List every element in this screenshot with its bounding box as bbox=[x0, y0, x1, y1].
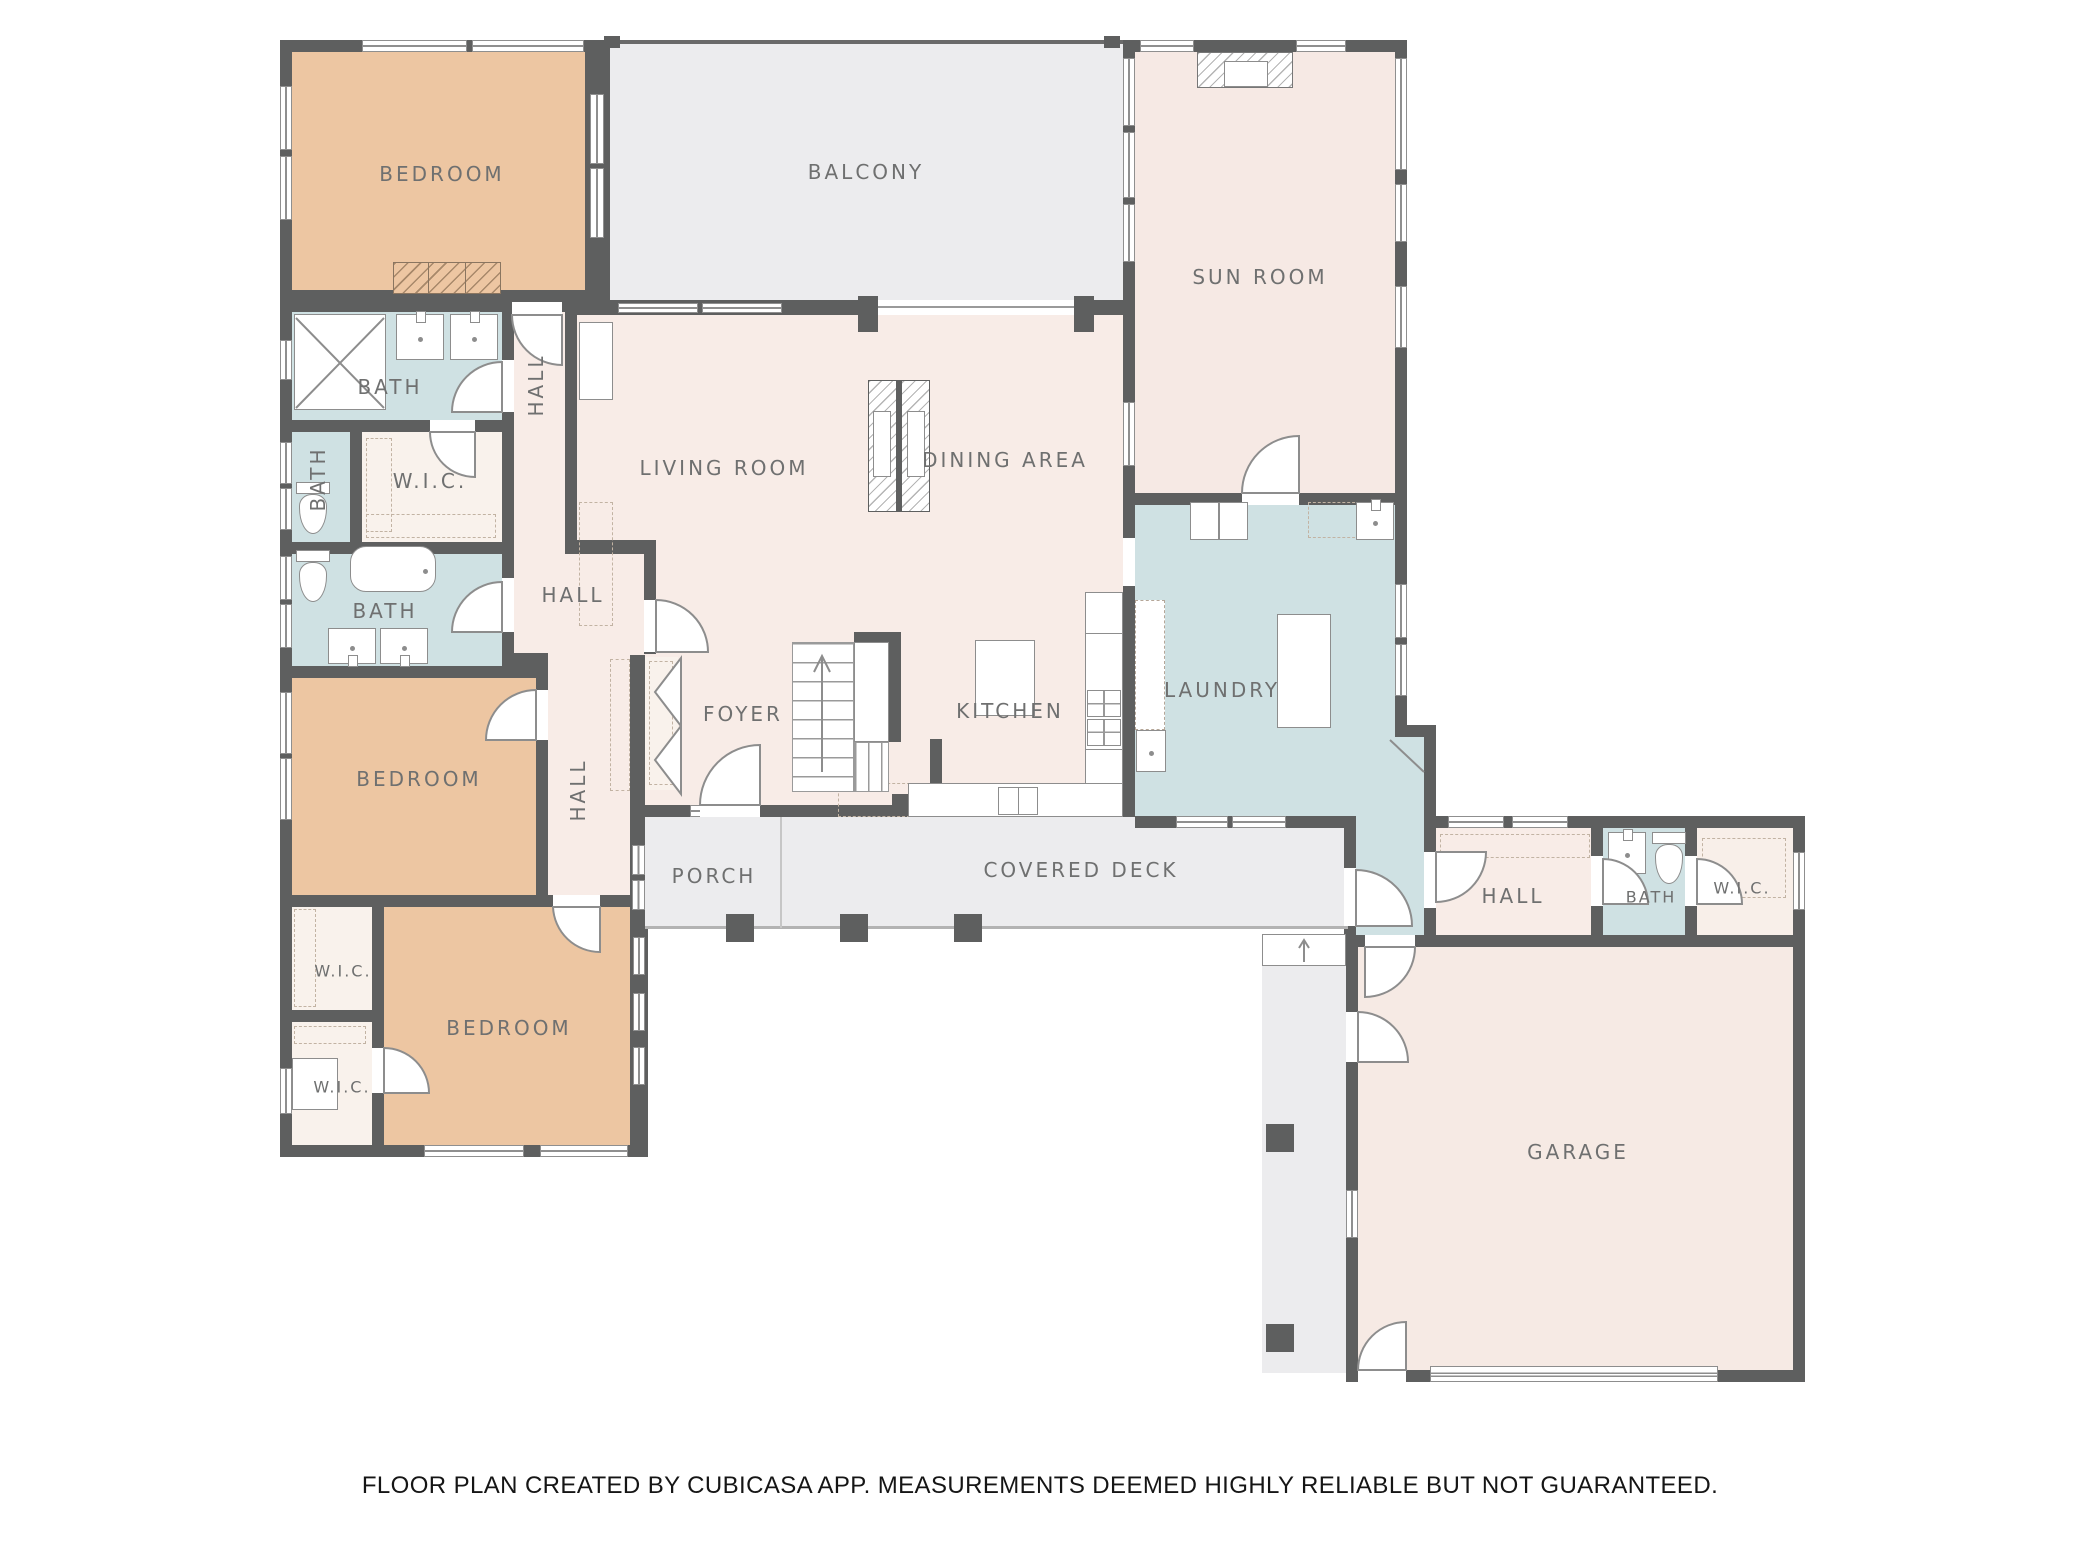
door-opening bbox=[553, 895, 600, 907]
sink bbox=[328, 628, 376, 664]
room-label-kitchen: KITCHEN bbox=[956, 699, 1064, 723]
room-label-hall-mid: HALL bbox=[541, 583, 604, 607]
door-opening bbox=[536, 690, 548, 740]
balcony-post bbox=[604, 36, 620, 48]
tap-icon bbox=[400, 655, 410, 667]
window bbox=[1395, 58, 1407, 170]
room-label-wic-garage: W.I.C. bbox=[1713, 879, 1770, 898]
window bbox=[424, 1145, 524, 1157]
room-label-wic-lower-1: W.I.C. bbox=[314, 962, 371, 981]
deck-post bbox=[726, 914, 754, 942]
laundry-counter-dashed bbox=[1308, 502, 1360, 538]
window bbox=[1512, 816, 1568, 828]
door-opening bbox=[1424, 852, 1436, 908]
window bbox=[1296, 40, 1346, 52]
bathtub bbox=[350, 546, 436, 592]
sink bbox=[396, 314, 444, 360]
room-label-bath-left: BATH bbox=[306, 446, 330, 511]
fireplace-insert bbox=[1224, 61, 1268, 87]
door-opening bbox=[502, 360, 514, 412]
toilet-tank bbox=[296, 550, 330, 562]
window bbox=[1793, 852, 1805, 910]
tap-icon bbox=[1623, 829, 1633, 841]
room-laundry bbox=[1135, 505, 1395, 816]
room-hall-upper bbox=[514, 312, 565, 554]
room-label-balcony: BALCONY bbox=[808, 160, 924, 184]
closet-box bbox=[579, 322, 613, 400]
sunroom-fireplace bbox=[1197, 52, 1293, 88]
window bbox=[1395, 584, 1407, 638]
closet-dashed bbox=[366, 514, 496, 538]
garage-walkway bbox=[1262, 935, 1346, 1373]
window bbox=[590, 94, 604, 164]
room-label-bath-top: BATH bbox=[357, 375, 422, 399]
window bbox=[1123, 132, 1135, 198]
counter-divider bbox=[1086, 633, 1122, 634]
drain-icon bbox=[1373, 521, 1378, 526]
door-opening bbox=[1365, 935, 1415, 947]
hatch-divider bbox=[428, 263, 466, 293]
door-opening bbox=[1344, 868, 1356, 926]
window bbox=[632, 845, 645, 875]
room-label-laundry: LAUNDRY bbox=[1164, 678, 1280, 702]
sink bbox=[1608, 832, 1646, 874]
drain-icon bbox=[402, 646, 407, 651]
toilet bbox=[1652, 832, 1686, 886]
tap-icon bbox=[348, 655, 358, 667]
window bbox=[632, 880, 645, 910]
room-label-garage: GARAGE bbox=[1527, 1140, 1629, 1164]
window bbox=[1395, 286, 1407, 348]
window bbox=[1176, 816, 1228, 828]
door-opening bbox=[1358, 1368, 1406, 1382]
fireplace-insert bbox=[873, 411, 891, 477]
laundry-island bbox=[1277, 614, 1331, 728]
room-label-hall-upper: HALL bbox=[524, 353, 548, 416]
room-label-living-room: LIVING ROOM bbox=[639, 456, 808, 480]
window bbox=[1232, 816, 1286, 828]
window bbox=[1123, 58, 1135, 126]
cased-opening bbox=[1123, 538, 1135, 586]
porch-deck-divider bbox=[780, 817, 782, 928]
floor-plan: BEDROOM BALCONY SUN ROOM BATH HALL W.I.C… bbox=[0, 0, 2080, 1560]
window bbox=[280, 604, 292, 648]
window bbox=[1123, 402, 1135, 466]
room-label-hall-garage: HALL bbox=[1481, 884, 1544, 908]
window bbox=[280, 488, 292, 530]
staircase bbox=[792, 642, 854, 792]
closet-dashed bbox=[649, 661, 673, 785]
laundry-sink bbox=[1356, 502, 1394, 540]
window bbox=[362, 40, 467, 52]
opening-post bbox=[1074, 296, 1094, 332]
toilet bbox=[296, 550, 330, 604]
cooktop bbox=[1087, 690, 1121, 717]
window bbox=[618, 303, 698, 313]
deck-stair-box bbox=[1262, 934, 1346, 966]
window bbox=[590, 168, 604, 238]
sink bbox=[450, 314, 498, 360]
bedroom-closet-hatch bbox=[393, 262, 501, 294]
walkway-post bbox=[1266, 1124, 1294, 1152]
room-label-dining-area: DINING AREA bbox=[922, 448, 1088, 472]
sink bbox=[380, 628, 428, 664]
fireplace-core bbox=[896, 381, 902, 511]
window bbox=[1123, 204, 1135, 262]
room-label-bedroom-mid: BEDROOM bbox=[356, 767, 481, 791]
window bbox=[280, 340, 292, 380]
laundry-appliance bbox=[1136, 730, 1166, 772]
stair-landing bbox=[854, 642, 889, 742]
laundry-counter bbox=[1135, 600, 1165, 730]
stair-winder bbox=[854, 742, 889, 792]
window bbox=[280, 442, 292, 484]
room-label-hall-lower: HALL bbox=[566, 758, 590, 821]
deck-post bbox=[840, 914, 868, 942]
counter-divider bbox=[1086, 749, 1122, 750]
room-laundry-ext bbox=[1395, 737, 1424, 828]
closet-dashed bbox=[294, 1026, 366, 1044]
tap-icon bbox=[470, 311, 480, 323]
toilet-bowl bbox=[1655, 844, 1683, 884]
door-opening bbox=[512, 302, 562, 315]
toilet-tank bbox=[1652, 832, 1686, 844]
opening-post bbox=[858, 296, 878, 332]
room-label-foyer: FOYER bbox=[703, 702, 783, 726]
window bbox=[633, 993, 645, 1031]
tap-icon bbox=[423, 569, 428, 574]
room-label-porch: PORCH bbox=[672, 864, 757, 888]
tap-icon bbox=[1371, 499, 1381, 511]
window bbox=[702, 303, 782, 313]
room-laundry-hall bbox=[1356, 816, 1424, 935]
cooktop bbox=[1087, 719, 1121, 746]
room-label-bedroom-top: BEDROOM bbox=[379, 162, 504, 186]
garage-door bbox=[1430, 1366, 1718, 1382]
door-opening bbox=[700, 805, 760, 817]
door-opening bbox=[644, 600, 656, 652]
sink-divider bbox=[1018, 788, 1019, 814]
window bbox=[280, 156, 292, 220]
door-opening bbox=[502, 578, 514, 632]
kitchen-sink bbox=[998, 787, 1038, 815]
window bbox=[280, 758, 292, 820]
sliding-door-line bbox=[878, 306, 1074, 308]
walkway-post bbox=[1266, 1324, 1294, 1352]
laundry-machine bbox=[1190, 502, 1219, 540]
door-opening bbox=[430, 420, 475, 432]
room-label-bath-mid: BATH bbox=[352, 599, 417, 623]
living-fireplace bbox=[868, 380, 930, 512]
window bbox=[1395, 184, 1407, 242]
door-opening bbox=[1591, 856, 1603, 906]
window bbox=[280, 692, 292, 754]
window bbox=[1346, 1190, 1358, 1238]
closet-dashed bbox=[1440, 834, 1590, 858]
drain-icon bbox=[350, 646, 355, 651]
drain-icon bbox=[418, 337, 423, 342]
closet-dashed bbox=[610, 659, 630, 791]
room-label-sun-room: SUN ROOM bbox=[1192, 265, 1327, 289]
window bbox=[280, 1068, 292, 1114]
room-label-bedroom-bottom: BEDROOM bbox=[446, 1016, 571, 1040]
closet-dashed bbox=[294, 909, 316, 1007]
balcony-post bbox=[1104, 36, 1120, 48]
door-opening bbox=[372, 1048, 384, 1093]
knob-icon bbox=[1149, 751, 1154, 756]
drain-icon bbox=[1625, 853, 1630, 858]
room-label-wic-lower-2: W.I.C. bbox=[313, 1078, 370, 1097]
deck-post bbox=[954, 914, 982, 942]
door-opening bbox=[1242, 493, 1299, 505]
window bbox=[1448, 816, 1504, 828]
room-label-bath-garage: BATH bbox=[1626, 888, 1676, 907]
toilet-bowl bbox=[299, 562, 327, 602]
window bbox=[633, 1047, 645, 1085]
window bbox=[540, 1145, 628, 1157]
disclaimer-text: FLOOR PLAN CREATED BY CUBICASA APP. MEAS… bbox=[0, 1472, 2080, 1500]
drain-ic bbox=[472, 337, 477, 342]
closet-dashed bbox=[579, 502, 613, 626]
laundry-machine bbox=[1219, 502, 1248, 540]
window bbox=[1140, 40, 1194, 52]
window bbox=[633, 937, 645, 975]
window bbox=[472, 40, 584, 52]
door-opening bbox=[1346, 1012, 1358, 1062]
window bbox=[280, 556, 292, 600]
wall-segment bbox=[889, 632, 901, 742]
window bbox=[280, 86, 292, 150]
window bbox=[1395, 644, 1407, 696]
wall-segment bbox=[630, 655, 645, 817]
room-label-wic-upper: W.I.C. bbox=[393, 469, 467, 493]
tap-icon bbox=[416, 311, 426, 323]
door-opening bbox=[1685, 856, 1697, 906]
room-label-covered-deck: COVERED DECK bbox=[983, 858, 1178, 882]
